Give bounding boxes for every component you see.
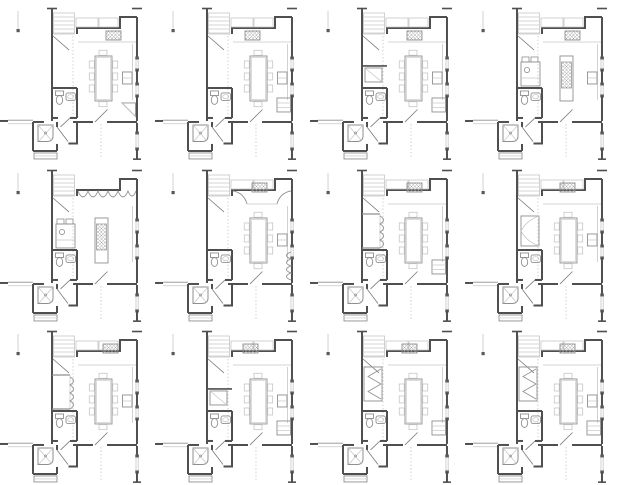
floor-plan-tile-plan-04 <box>465 0 620 162</box>
floor-plan-tile-plan-11 <box>310 323 465 485</box>
floor-plan-tile-plan-03 <box>310 0 465 162</box>
floor-plan-tile-plan-09 <box>0 323 155 485</box>
floor-plan-tile-plan-05 <box>0 162 155 324</box>
floor-plan-tile-plan-07 <box>310 162 465 324</box>
floor-plan-tile-plan-02 <box>155 0 310 162</box>
floor-plan-tile-plan-10 <box>155 323 310 485</box>
floor-plan-tile-plan-06 <box>155 162 310 324</box>
floor-plan-tile-plan-12 <box>465 323 620 485</box>
floor-plan-tile-plan-08 <box>465 162 620 324</box>
floor-plan-tile-plan-01 <box>0 0 155 162</box>
floor-plan-sheet <box>0 0 620 485</box>
plan-grid <box>0 0 620 485</box>
